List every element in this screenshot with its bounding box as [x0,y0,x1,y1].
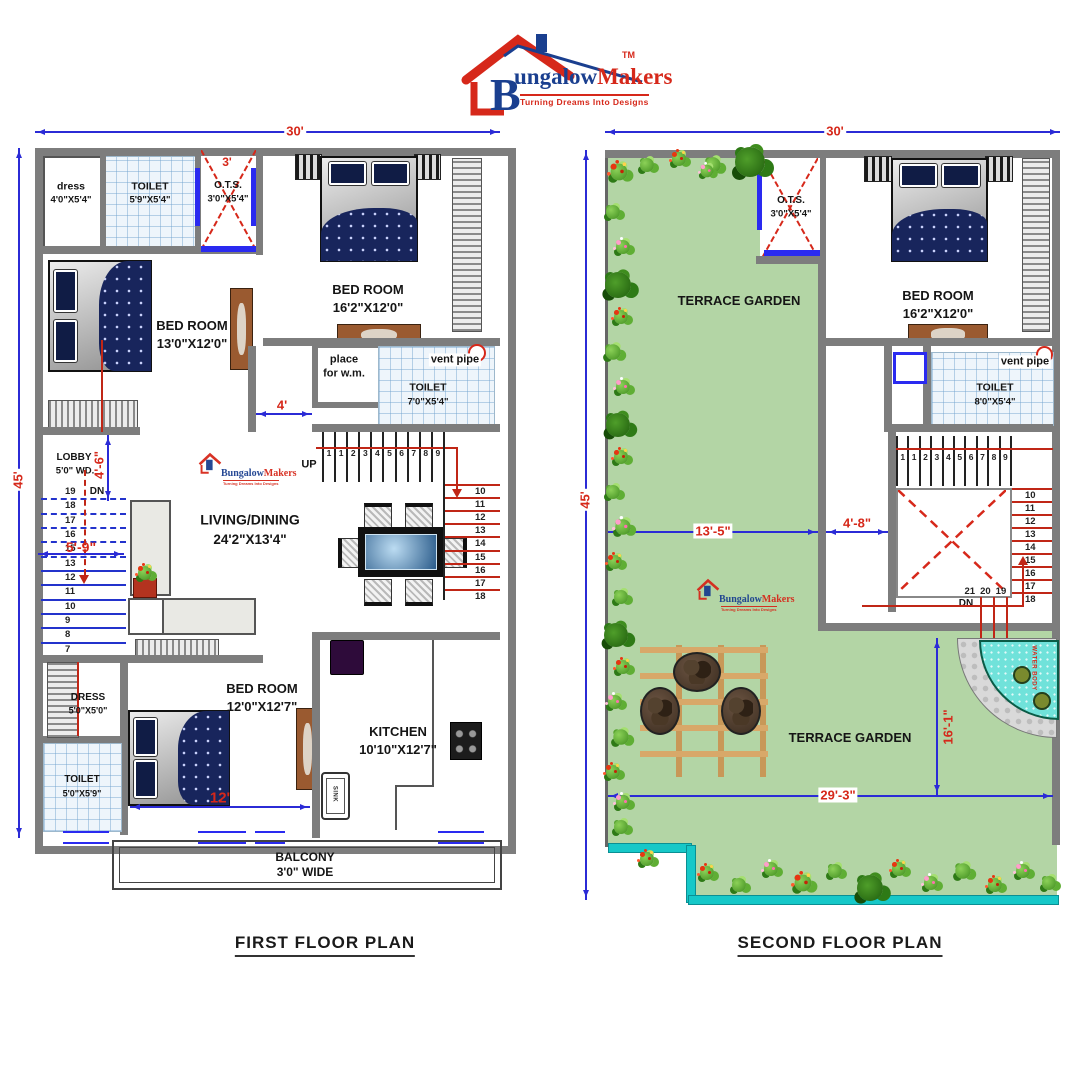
ff-balcony-label: BALCONY [275,850,334,864]
sf-stairs-guide [862,605,1024,607]
ff-bedroom-tr-label: BED ROOM [332,282,404,298]
ff-wall [312,632,500,640]
ff-dress-top-size: 4'0"X5'4" [51,194,92,205]
floor-plan-sheet: B TM ungalowMakers Turning Dreams Into D… [0,0,1080,1080]
sf-stairs-bottom: 212019 [962,586,1009,597]
stair-step: 20 [980,586,991,597]
logo-wordmark: ungalowMakers [514,64,672,90]
sf-vent-pipe-label: vent pipe [999,355,1051,368]
ff-bedroom-left-label: BED ROOM [156,318,228,334]
plant [606,413,630,437]
sf-stairs-right: 101112131415161718 [1012,488,1052,600]
wm-blue: ungalow [228,468,264,479]
dining-chair [405,579,433,606]
ff-bed-left [48,260,152,372]
ff-place-wm-line2: for w.m. [323,367,365,380]
ff-wall [312,632,320,838]
ff-dim-line-left [18,148,20,838]
sink-label: SINK [330,786,337,802]
stair-step: 19 [996,586,1007,597]
stair-step: 13 [1012,527,1052,540]
ff-dim-top: 30' [284,124,306,139]
sf-dim-terrace-h: 16'-1" [941,707,956,746]
stair-step: 6 [397,432,409,482]
plant [892,862,906,876]
ff-wall [100,148,106,252]
wm-tagline: Turning Dreams Into Designs [721,606,777,612]
ff-stairs-guide [84,470,86,575]
sf-wardrobe [1022,158,1050,332]
sf-terrace-top-label: TERRACE GARDEN [678,293,801,309]
sf-void-cross-icon [898,490,1006,592]
ff-toilet-mid-size: 7'0"X5'4" [408,396,449,407]
ff-toilet-b-size: 5'0"X5'9" [63,789,102,800]
stair-step: 12 [1012,514,1052,527]
stair-step: 2 [348,432,360,482]
ff-balcony-size: 3'0" WIDE [277,865,334,879]
plant [606,205,620,219]
plant [616,660,630,674]
stair-step: 5 [955,436,966,486]
ff-section-line [101,340,103,432]
plant [608,695,622,709]
ff-ots-window [201,246,256,252]
side-table [128,598,164,635]
sf-dim-terrace-b: 29'-3" [818,788,857,803]
ff-ots-window [195,168,200,226]
ff-wall [248,346,256,432]
plant [732,878,746,892]
sf-ots-window [757,172,762,230]
ff-wall [312,424,500,432]
ff-vent-pipe-label: vent pipe [429,353,481,366]
ff-bed-tr-headboard [414,154,441,180]
sf-wall [884,424,1053,432]
water-body-label: WATER BODY [1029,645,1036,690]
stair-step: 10 [1012,488,1052,501]
stair-step: 9 [41,615,126,629]
plant [795,875,812,892]
ff-ots-size: 3'0"X5'4" [208,193,249,204]
ff-bed-tr-headboard [295,154,322,180]
plant [672,152,686,166]
rattan-chair [673,652,721,692]
sf-stairs-top: 1123456789 [896,436,1012,486]
ff-lobby-label: LOBBY [57,452,92,464]
stair-step: 11 [445,497,500,510]
sf-wall [888,432,896,612]
window [63,831,109,844]
ff-bedroom-b-label: BED ROOM [226,681,298,697]
sf-dim-line-left [585,150,587,900]
sf-wall [884,346,892,432]
plant [604,623,628,647]
plant [735,147,765,177]
stair-step: 7 [978,436,989,486]
plant [611,164,628,181]
ff-dim-stair: 5'-9" [64,539,98,555]
ff-living-label: LIVING/DINING [200,512,300,529]
plant [615,519,630,534]
stair-step: 8 [421,432,433,482]
wm-red: Makers [264,468,297,479]
ff-toilet-top-label: TOILET [131,181,168,194]
sofa [162,598,256,635]
sf-dim-top: 30' [824,124,846,139]
ff-ots-label: O.T.S. [214,180,242,192]
plant [614,310,628,324]
wm-b: B [719,594,726,605]
stair-step: 4 [944,436,955,486]
plant [614,450,628,464]
ff-stairs-guide [456,447,458,489]
logo-tm: TM [622,50,635,60]
sf-stairs-guide [896,448,1053,450]
plant [614,590,628,604]
ff-title: FIRST FLOOR PLAN [235,933,415,957]
sf-ots-label: O.T.S. [777,195,805,207]
stair-step: 5 [384,432,396,482]
dining-chair [364,579,392,606]
stair-step: 21 [965,586,976,597]
ff-bedroom-tr-size: 16'2"X12'0" [333,300,404,316]
sf-dim-terrace-h-line [936,638,938,795]
sf-dim-left: 45' [578,489,593,511]
plant [614,820,628,834]
sf-bed-headboard [985,156,1013,182]
watermark-house-icon [695,576,721,602]
ff-lobby-size: 5'0" WD. [56,465,94,476]
ff-toilet-mid-label: TOILET [409,382,446,395]
ff-toilet-top-size: 5'9"X5'4" [130,194,171,205]
stair-step: 3 [932,436,943,486]
dining-chair [364,503,392,530]
sf-ots-size: 3'0"X5'4" [771,208,812,219]
ff-stairs-top: 1123456789 [322,432,445,482]
stair-step: 1 [322,432,336,482]
sf-stairs-guide [993,597,995,640]
plant [616,795,630,809]
sf-wall [826,338,1053,346]
ff-toilet-b-room [43,743,122,832]
ff-dim-bed: 12' [208,790,232,807]
sf-garden-edge [608,843,692,853]
stair-step: 1 [336,432,348,482]
stair-step: 18 [1012,592,1052,605]
ff-ots-dim: 3' [220,155,234,169]
sf-bed [891,158,988,262]
watermark-house-icon [197,450,223,476]
ff-kitchen-label: KITCHEN [369,724,427,740]
plant [608,555,622,569]
dining-chair [405,503,433,530]
ff-dim-line-top [35,131,500,133]
ff-dim-passage-line [256,413,312,415]
stair-step: 4 [372,432,384,482]
sf-dn-label: DN [959,598,973,610]
ff-counter-line [395,785,397,830]
plant [613,729,628,744]
stove-icon [450,722,482,760]
stair-step: 16 [1012,566,1052,579]
wm-blue: ungalow [726,594,762,605]
sf-bedroom-label: BED ROOM [902,288,974,304]
ff-ots-window [251,168,256,226]
stair-step: 8 [41,629,126,643]
ff-dim-passage: 4' [275,398,289,413]
wm-red: Makers [762,594,795,605]
ff-bedroom-b-size: 12'0"X12'7" [227,699,298,715]
ff-dress-b-label: DRESS [71,692,105,704]
ff-dress-top-label: dress [57,181,85,194]
stair-step: 7 [409,432,421,482]
sf-wall [1052,150,1060,845]
water-plant [1033,692,1051,710]
rattan-chair [640,687,680,735]
stair-step: 17 [445,576,500,589]
brand-logo: B TM ungalowMakers Turning Dreams Into D… [452,28,652,120]
sf-boundary-line [605,150,608,847]
sf-duct-window [893,352,927,384]
ff-wardrobe-left [48,400,138,429]
sf-ots-window [764,250,820,256]
plant [988,878,1002,892]
stair-step: 3 [360,432,372,482]
plant [640,158,654,172]
plant [605,272,631,298]
ff-bed-top-right [320,156,418,262]
stair-step: 2 [921,436,932,486]
plant [828,864,842,878]
stair-step: 13 [445,523,500,536]
plant [138,566,152,580]
ff-dress-b-size: 5'0"X5'0" [69,706,108,717]
sf-watermark-logo: BungalowMakers Turning Dreams Into Desig… [695,576,785,618]
stair-step: 11 [1012,501,1052,514]
water-plant [1013,666,1031,684]
plant [606,485,620,499]
ff-wardrobe-tr [452,158,482,332]
plant [1042,876,1056,890]
plant [616,380,630,394]
sf-wall [818,623,1060,631]
sf-stairs-guide [1022,560,1024,607]
plant [764,862,778,876]
logo-word-blue: ungalow [514,64,597,89]
stair-step: 1 [909,436,920,486]
stair-step: 15 [445,550,500,563]
plant [955,863,970,878]
ff-up-label: UP [301,458,316,471]
wm-b: B [221,468,228,479]
sf-wall [756,256,826,264]
sf-title: SECOND FLOOR PLAN [738,933,943,957]
wm-tagline: Turning Dreams Into Designs [223,480,279,486]
logo-tagline: Turning Dreams Into Designs [520,94,649,107]
ff-living-size: 24'2"X13'4" [213,532,286,548]
stair-step: 1 [896,436,909,486]
sf-stairs-guide [980,597,982,640]
ff-dim-left: 45' [11,469,26,491]
stair-step: 6 [966,436,977,486]
stair-step: 8 [989,436,1000,486]
plant [606,765,620,779]
plant [1016,864,1030,878]
stair-step: 16 [445,563,500,576]
ff-stairs-arrow [79,575,89,589]
ff-watermark-logo: BungalowMakers Turning Dreams Into Desig… [197,450,292,492]
plant [857,875,883,901]
dining-table [358,527,444,577]
sf-toilet-label: TOILET [976,382,1013,395]
ff-toilet-b-label: TOILET [64,774,99,786]
ff-bedroom-left-size: 13'0"X12'0" [157,336,228,352]
sf-toilet-size: 8'0"X5'4" [975,396,1016,407]
plant [616,240,630,254]
plant-pot [133,578,157,598]
stair-step: 18 [445,589,500,602]
ff-wall [256,148,263,255]
ff-stairs-guide [316,447,458,449]
sf-dim-stair-w-line [826,531,888,533]
stair-step: 9 [1001,436,1012,486]
sf-stairs-arrow [1018,551,1028,565]
rattan-chair [721,687,761,735]
stair-step: 14 [445,536,500,549]
logo-word-red: Makers [597,64,672,89]
ff-wall [35,427,140,435]
sf-dim-stair-w: 4'-8" [841,516,873,531]
plant [701,165,714,178]
stair-step: 17 [1012,579,1052,592]
ff-place-wm-line1: place [330,353,358,366]
ff-counter-line [432,640,434,786]
plant [924,876,938,890]
stair-step: 10 [445,484,500,497]
ff-stairs-right: 101112131415161718 [445,484,500,602]
plant [700,866,714,880]
sf-terrace-bottom-label: TERRACE GARDEN [789,730,912,746]
sf-bed-headboard [864,156,892,182]
ff-kitchen-size: 10'10"X12'7" [359,742,437,758]
plant [605,344,620,359]
stair-step: 12 [445,510,500,523]
fridge-icon [330,640,364,675]
sf-stairs-guide [1006,597,1008,640]
sf-dim-terrace-w: 13'-5" [693,524,732,539]
sf-bedroom-size: 16'2"X12'0" [903,306,974,322]
stair-step: 10 [41,601,126,615]
ff-counter-line [395,785,434,787]
plant [640,852,654,866]
